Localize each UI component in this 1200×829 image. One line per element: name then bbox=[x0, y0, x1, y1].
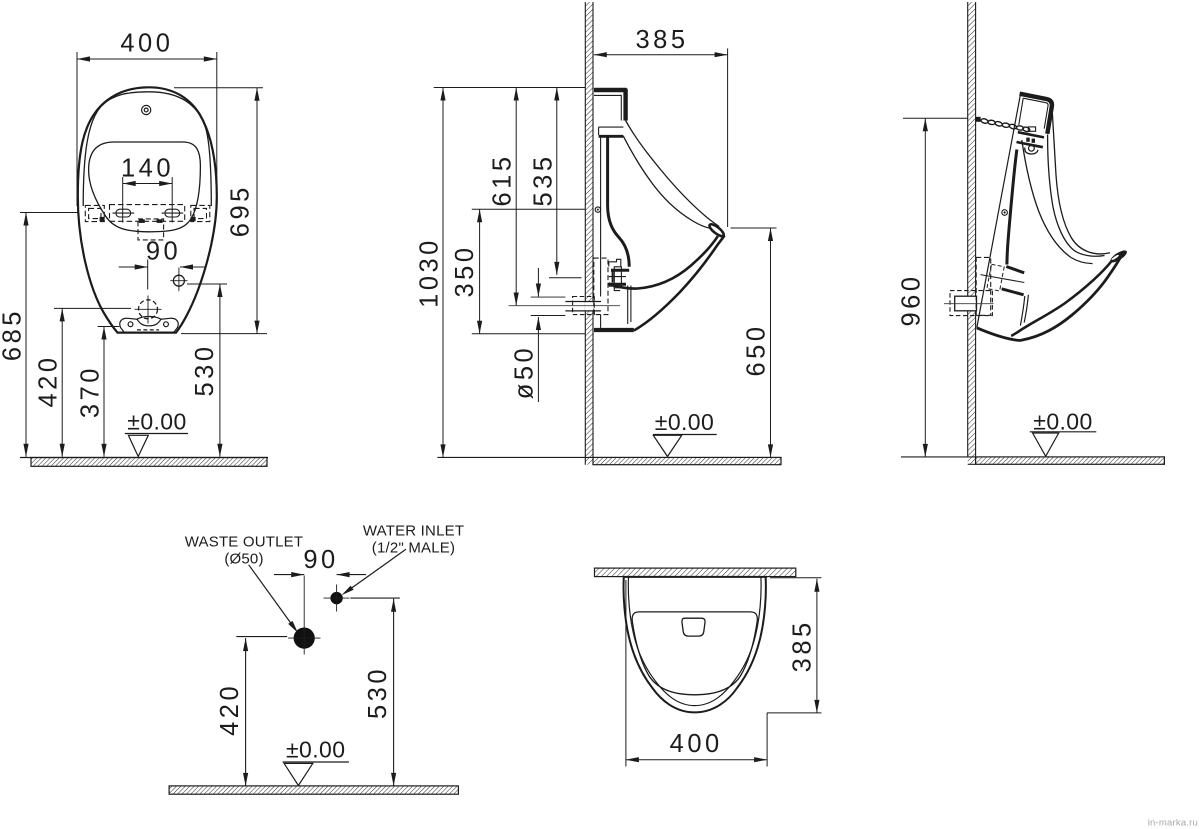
svg-text:±0.00: ±0.00 bbox=[127, 409, 186, 435]
svg-text:385: 385 bbox=[789, 619, 817, 672]
svg-text:1030: 1030 bbox=[416, 237, 444, 308]
svg-text:90: 90 bbox=[303, 546, 338, 574]
svg-text:90: 90 bbox=[146, 238, 181, 266]
svg-text:530: 530 bbox=[191, 343, 219, 396]
svg-text:in-marka.ru: in-marka.ru bbox=[1148, 818, 1198, 829]
svg-text:WASTE OUTLET: WASTE OUTLET bbox=[185, 534, 304, 551]
svg-text:(Ø50): (Ø50) bbox=[224, 551, 263, 568]
svg-text:±0.00: ±0.00 bbox=[286, 737, 345, 763]
svg-text:420: 420 bbox=[35, 354, 63, 407]
svg-text:140: 140 bbox=[121, 155, 174, 183]
svg-text:615: 615 bbox=[489, 153, 517, 206]
svg-text:530: 530 bbox=[364, 666, 392, 719]
svg-text:WATER INLET: WATER INLET bbox=[363, 523, 464, 540]
svg-text:385: 385 bbox=[635, 26, 688, 54]
svg-text:ø50: ø50 bbox=[511, 345, 539, 399]
svg-text:400: 400 bbox=[670, 730, 723, 758]
svg-text:685: 685 bbox=[0, 308, 27, 361]
svg-text:±0.00: ±0.00 bbox=[655, 409, 714, 435]
svg-text:400: 400 bbox=[120, 30, 173, 58]
svg-text:420: 420 bbox=[216, 683, 244, 736]
svg-text:695: 695 bbox=[227, 184, 255, 237]
svg-text:350: 350 bbox=[451, 244, 479, 297]
svg-text:650: 650 bbox=[743, 323, 771, 376]
svg-text:±0.00: ±0.00 bbox=[1033, 409, 1092, 435]
svg-text:(1/2" MALE): (1/2" MALE) bbox=[372, 540, 455, 557]
svg-text:370: 370 bbox=[77, 365, 105, 418]
svg-text:960: 960 bbox=[898, 273, 926, 326]
svg-text:535: 535 bbox=[529, 153, 557, 206]
